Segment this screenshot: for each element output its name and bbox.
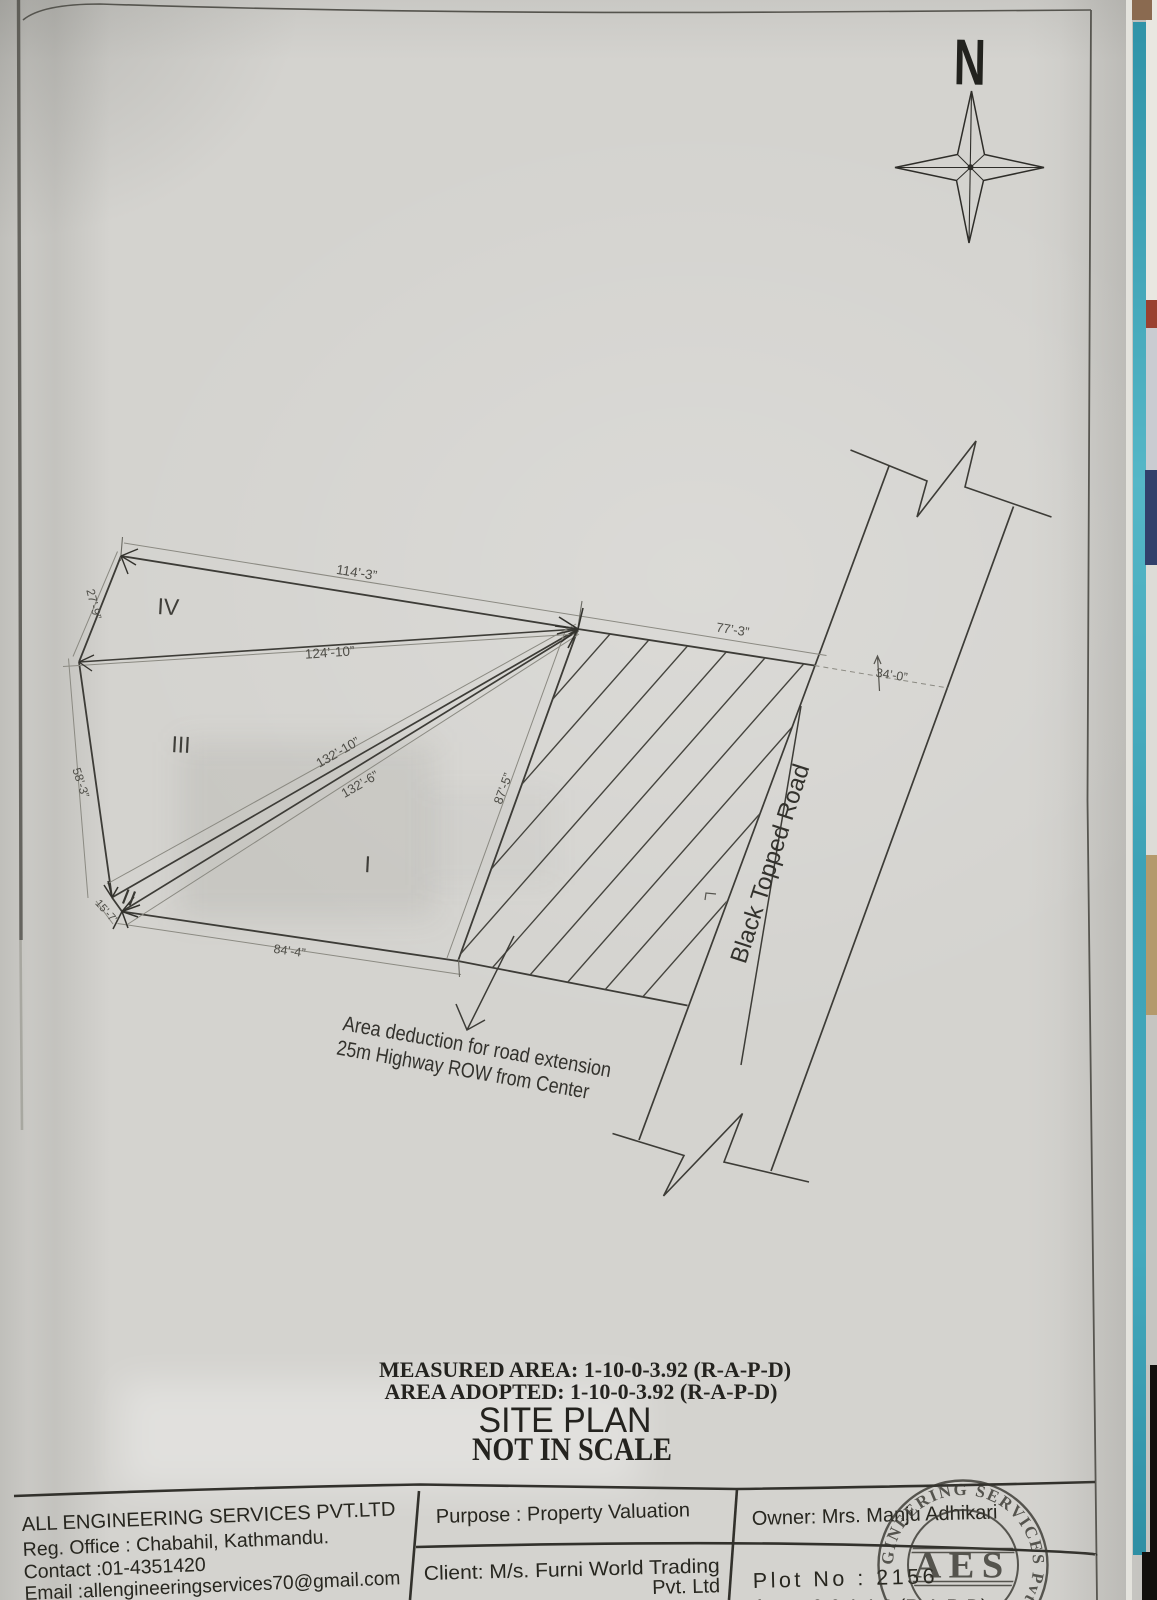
svg-text:124’-10”: 124’-10”: [304, 643, 354, 661]
svg-text:Area : 0-0-1-1.2 (R-A-P-D): Area : 0-0-1-1.2 (R-A-P-D): [753, 1597, 988, 1600]
svg-text:Owner: Mrs. Manju Adhikari: Owner: Mrs. Manju Adhikari: [752, 1502, 998, 1530]
svg-text:III: III: [171, 731, 192, 758]
svg-text:58’-3”: 58’-3”: [69, 766, 92, 800]
svg-text:Purpose : Property Valuation: Purpose : Property Valuation: [436, 1499, 691, 1528]
svg-text:132’-6”: 132’-6”: [338, 767, 381, 800]
svg-text:Pvt. Ltd: Pvt. Ltd: [652, 1575, 720, 1599]
svg-text:Black Topped Road: Black Topped Road: [725, 761, 815, 967]
svg-text:N: N: [953, 25, 986, 99]
svg-text:114’-3”: 114’-3”: [335, 562, 378, 583]
svg-text:34’-0”: 34’-0”: [875, 666, 909, 685]
svg-text:NOT IN SCALE: NOT IN SCALE: [472, 1432, 672, 1468]
svg-text:AES: AES: [914, 1546, 1011, 1587]
svg-text:87’-5”: 87’-5”: [491, 771, 515, 806]
svg-text:84’-4”: 84’-4”: [273, 942, 307, 960]
svg-text:I: I: [364, 851, 372, 877]
svg-text:27’-9”: 27’-9”: [83, 587, 104, 620]
svg-text:132’-10”: 132’-10”: [313, 734, 362, 771]
svg-text:IV: IV: [157, 593, 181, 620]
svg-text:77’-3”: 77’-3”: [715, 620, 750, 640]
